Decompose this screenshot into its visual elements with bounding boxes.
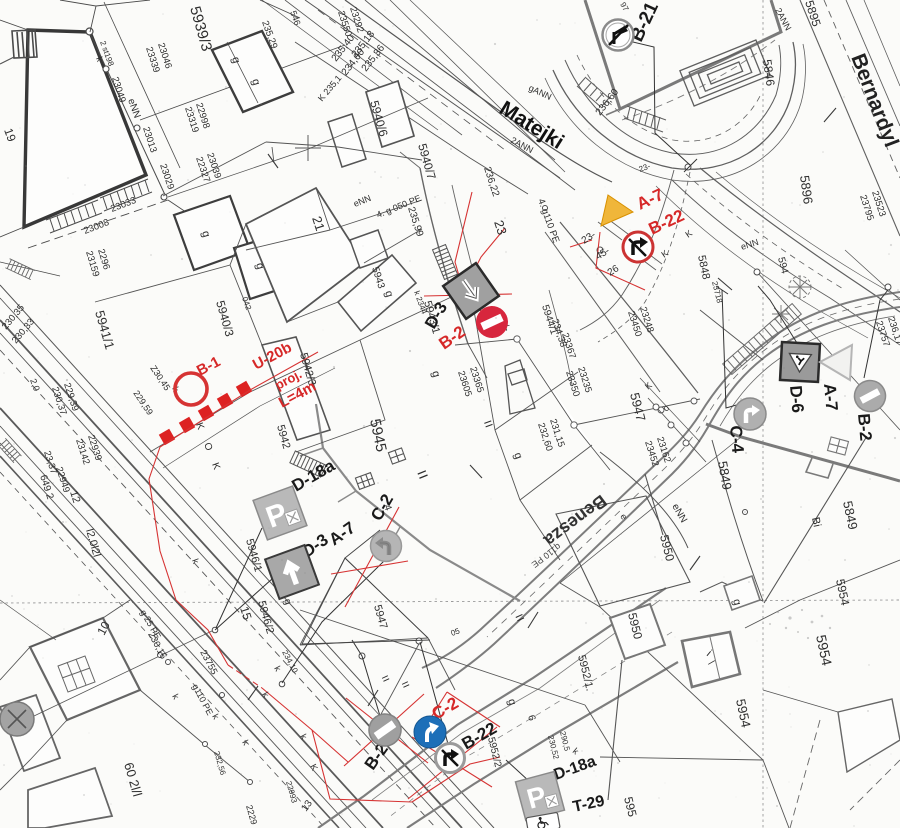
- svg-text:A-7: A-7: [820, 383, 841, 412]
- svg-text:D-6: D-6: [786, 385, 807, 414]
- svg-text:B-2: B-2: [854, 413, 875, 442]
